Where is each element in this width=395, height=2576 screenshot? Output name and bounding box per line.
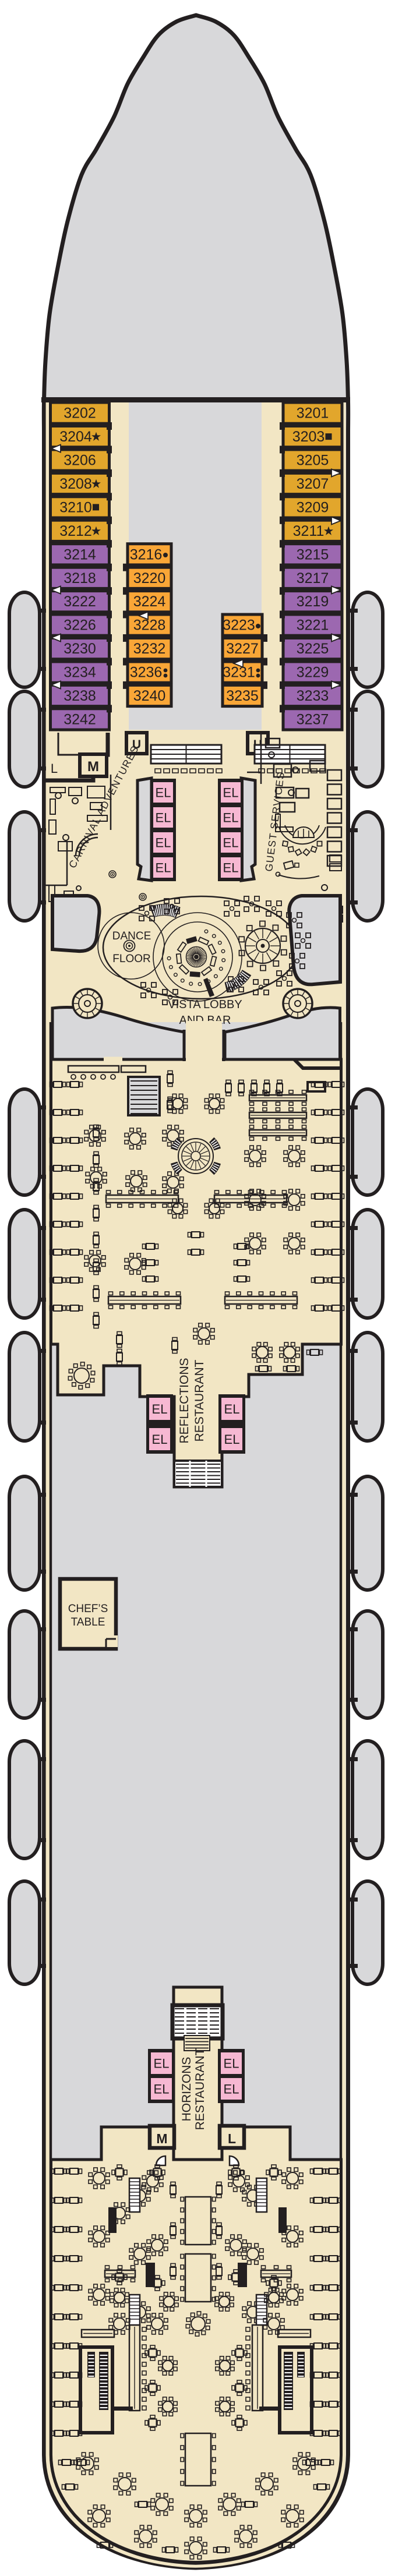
svg-text:M: M [87,759,99,775]
svg-text:EL: EL [224,1402,240,1416]
svg-text:3226: 3226 [64,617,96,634]
svg-text:EL: EL [156,836,171,850]
svg-text:REFLECTIONS: REFLECTIONS [178,1358,191,1443]
svg-text:3236: 3236 [130,665,163,681]
svg-text:3207: 3207 [297,476,329,492]
svg-text:CHEF’S: CHEF’S [68,1603,108,1615]
svg-text:3232: 3232 [133,641,166,657]
svg-text:3237: 3237 [297,711,329,727]
svg-text:EL: EL [223,861,239,875]
svg-text:3215: 3215 [297,546,329,563]
svg-text:3216: 3216 [130,546,163,563]
svg-text:RESTAURANT: RESTAURANT [193,1359,206,1441]
svg-text:3212: 3212 [59,523,92,539]
svg-text:EL: EL [152,1432,168,1447]
svg-text:3208: 3208 [59,476,92,492]
svg-text:3211: 3211 [293,523,325,539]
svg-text:3221: 3221 [297,617,329,634]
svg-text:EL: EL [223,786,239,800]
svg-text:3231: 3231 [223,665,255,681]
svg-text:EL: EL [223,836,239,850]
svg-text:3204: 3204 [59,429,92,445]
svg-text:3235: 3235 [226,688,259,704]
svg-text:EL: EL [156,811,171,825]
svg-text:3217: 3217 [297,570,329,586]
svg-text:VISTA LOBBY: VISTA LOBBY [168,998,242,1011]
svg-text:EL: EL [224,2082,239,2097]
svg-text:3238: 3238 [64,688,96,704]
svg-text:EL: EL [224,1432,240,1447]
svg-text:FLOOR: FLOOR [112,953,150,965]
svg-text:3228: 3228 [133,617,166,634]
svg-text:3219: 3219 [297,593,329,610]
svg-text:3222: 3222 [64,593,96,610]
svg-text:3224: 3224 [133,593,166,610]
svg-text:3233: 3233 [297,688,329,704]
svg-text:EL: EL [154,2082,170,2097]
svg-text:EL: EL [154,2056,170,2071]
svg-text:3229: 3229 [297,665,329,681]
svg-text:3201: 3201 [297,405,329,422]
svg-text:3230: 3230 [64,641,96,657]
svg-text:3202: 3202 [64,405,96,422]
svg-text:L: L [51,761,58,776]
svg-text:EL: EL [156,861,171,875]
svg-text:3225: 3225 [297,641,329,657]
svg-text:EL: EL [156,786,171,800]
svg-text:DANCE: DANCE [112,930,151,942]
svg-text:L: L [228,2131,236,2146]
svg-text:3234: 3234 [64,665,96,681]
svg-text:3223: 3223 [223,617,255,634]
svg-text:3220: 3220 [133,570,166,586]
svg-text:3210: 3210 [59,499,92,515]
svg-text:HORIZONS: HORIZONS [180,2057,193,2122]
svg-text:3209: 3209 [297,499,329,515]
svg-text:3218: 3218 [64,570,96,586]
svg-text:3205: 3205 [297,453,329,469]
svg-text:EL: EL [152,1402,168,1416]
svg-text:TABLE: TABLE [71,1616,105,1628]
svg-text:3203: 3203 [292,429,325,445]
svg-text:3242: 3242 [64,711,96,727]
svg-text:RESTAURANT: RESTAURANT [193,2048,207,2130]
svg-text:EL: EL [223,811,239,825]
svg-text:M: M [156,2131,167,2146]
svg-text:3240: 3240 [133,688,166,704]
svg-text:3227: 3227 [226,641,259,657]
svg-text:3206: 3206 [64,453,96,469]
svg-text:3214: 3214 [64,546,96,563]
svg-text:EL: EL [224,2056,239,2071]
